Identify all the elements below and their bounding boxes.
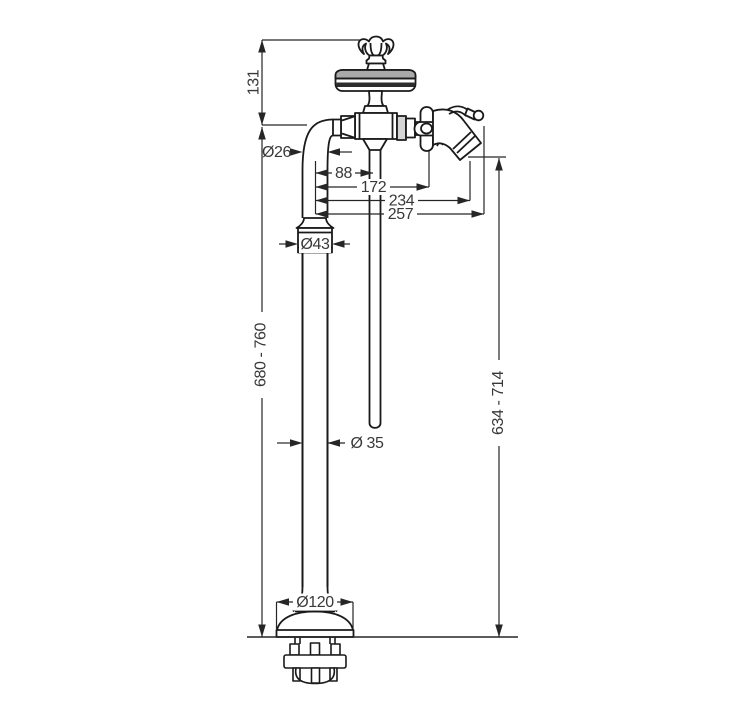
arrow-left <box>316 169 329 177</box>
dim-label-172: 172 <box>361 179 387 196</box>
arrow-down <box>495 625 503 638</box>
bath-mixer-dimension-drawing: 131 Ø26 88 172 234 257 Ø43 680 - 760 Ø 3… <box>0 0 750 711</box>
arrow-right <box>361 169 374 177</box>
arrow-left <box>277 598 290 606</box>
bolt <box>312 668 320 683</box>
spout <box>433 106 483 160</box>
bolt-head <box>290 644 299 655</box>
arrow-left <box>316 197 329 205</box>
dim-label-d35: Ø 35 <box>350 435 384 452</box>
dim-label-131: 131 <box>246 69 263 95</box>
dim-label-d43: Ø43 <box>300 236 330 253</box>
arrow-right <box>458 197 471 205</box>
mixer-body <box>333 113 397 139</box>
cartridge-stem <box>363 91 388 113</box>
arrow-right <box>290 439 303 447</box>
dim-label-257: 257 <box>388 206 414 223</box>
inlet-elbow-pipe <box>303 120 334 219</box>
dim-label-680-760: 680 - 760 <box>253 322 270 387</box>
escutcheon-disc <box>336 70 416 91</box>
standpipe-column <box>303 253 328 588</box>
nub-cap <box>474 111 484 121</box>
faucet-fixture <box>277 37 484 684</box>
mounting-hardware <box>284 637 346 684</box>
arrow-left <box>328 148 341 156</box>
inlet-connector <box>333 120 341 136</box>
technical-drawing-canvas: 131 Ø26 88 172 234 257 Ø43 680 - 760 Ø 3… <box>0 0 750 711</box>
dim-label-88: 88 <box>335 165 352 182</box>
mounting-flange <box>284 655 346 668</box>
arrow-up <box>495 158 503 171</box>
arrow-right <box>341 598 354 606</box>
arrow-left <box>316 183 329 191</box>
arrow-left <box>328 439 341 447</box>
arrow-up <box>258 127 266 140</box>
ornament-finial-handle <box>359 37 394 71</box>
arrow-right <box>472 210 485 218</box>
arrow-right <box>286 240 299 248</box>
dim-label-634-714: 634 - 714 <box>490 370 507 435</box>
arrow-right <box>417 183 430 191</box>
dim-label-d26: Ø26 <box>262 144 292 161</box>
arrow-left <box>316 210 329 218</box>
bolt-head <box>331 644 340 655</box>
arrow-left <box>332 240 345 248</box>
dim-label-d120: Ø120 <box>296 594 334 611</box>
arrow-up <box>258 40 266 53</box>
arrow-down <box>258 625 266 638</box>
arrow-right <box>290 148 303 156</box>
bolt-head <box>311 643 320 655</box>
arrow-down <box>258 113 266 126</box>
